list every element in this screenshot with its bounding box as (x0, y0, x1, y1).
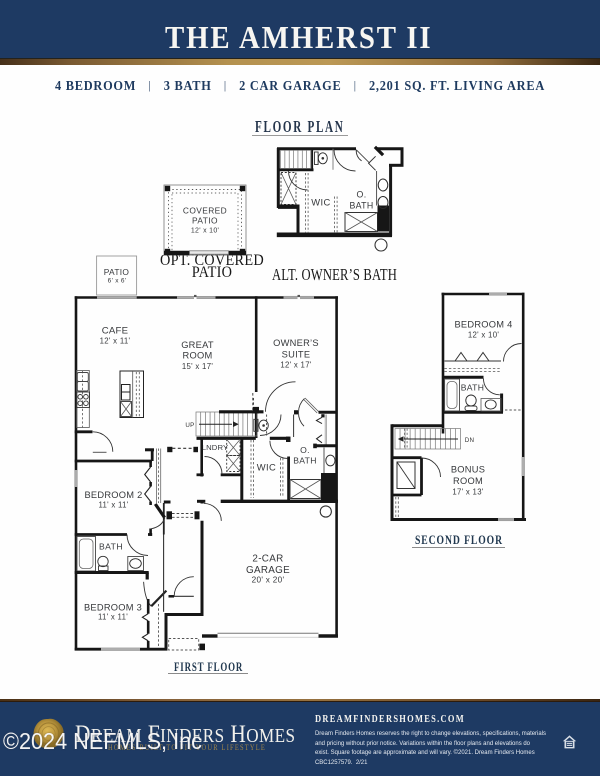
svg-text:BATH: BATH (461, 383, 484, 393)
svg-text:COVERED: COVERED (183, 206, 227, 216)
svg-text:WIC: WIC (311, 197, 330, 208)
svg-text:DN: DN (465, 437, 475, 444)
svg-text:20' x 20': 20' x 20' (252, 576, 285, 585)
svg-text:PATIO: PATIO (104, 267, 130, 277)
svg-text:ROOM: ROOM (183, 351, 213, 361)
svg-text:BATH: BATH (349, 201, 373, 211)
svg-text:PATIO: PATIO (192, 216, 218, 226)
svg-text:OWNER’S: OWNER’S (273, 338, 319, 348)
svg-text:WIC: WIC (257, 462, 276, 473)
svg-text:UP: UP (185, 422, 194, 429)
svg-text:11' x 11': 11' x 11' (98, 613, 128, 622)
svg-text:6' x 6': 6' x 6' (108, 278, 127, 285)
svg-text:BEDROOM 2: BEDROOM 2 (84, 490, 142, 500)
svg-text:12' x 10': 12' x 10' (191, 228, 219, 235)
svg-text:SUITE: SUITE (282, 350, 311, 360)
svg-text:BATH: BATH (99, 542, 123, 552)
svg-text:BEDROOM 3: BEDROOM 3 (84, 603, 142, 613)
svg-text:O.: O. (357, 190, 367, 200)
svg-text:12' x 17': 12' x 17' (280, 361, 311, 370)
svg-text:12' x 10': 12' x 10' (468, 331, 499, 340)
svg-text:12' x 11': 12' x 11' (100, 337, 131, 346)
svg-text:O.: O. (300, 445, 310, 455)
svg-text:GREAT: GREAT (181, 340, 214, 350)
svg-text:CAFE: CAFE (102, 326, 129, 337)
svg-text:17' x 13': 17' x 13' (452, 488, 483, 497)
svg-text:ROOM: ROOM (453, 476, 483, 486)
svg-text:11' x 11': 11' x 11' (98, 501, 128, 510)
svg-text:GARAGE: GARAGE (246, 565, 290, 576)
svg-text:2-CAR: 2-CAR (252, 554, 283, 565)
svg-text:BATH: BATH (293, 456, 316, 466)
svg-text:15' x 17': 15' x 17' (182, 362, 213, 371)
svg-text:LNDRY: LNDRY (202, 443, 228, 452)
svg-text:BONUS: BONUS (451, 465, 485, 475)
svg-text:BEDROOM 4: BEDROOM 4 (454, 320, 512, 330)
